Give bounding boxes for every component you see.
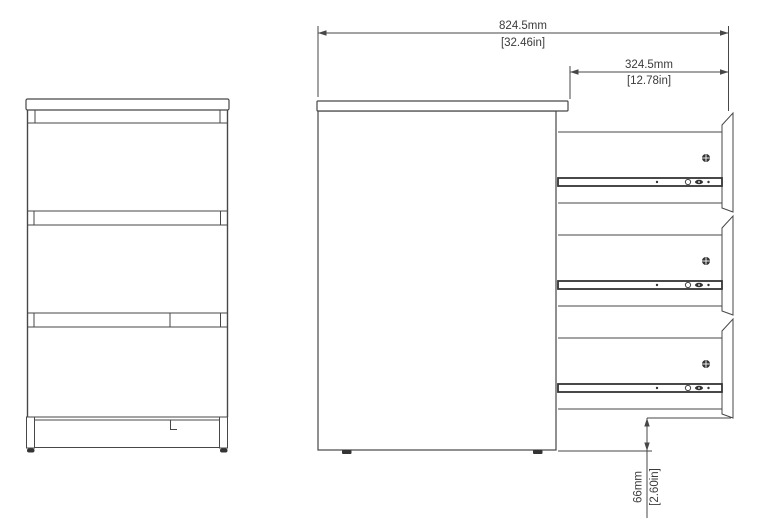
slide-rivet-icon <box>656 284 658 286</box>
slide-rivet-icon <box>707 181 709 183</box>
side-panel <box>318 111 556 450</box>
slide-roller-icon <box>685 282 690 287</box>
drawer1-front-panel <box>722 113 733 212</box>
overall-width-metric-label: 824.5mm <box>499 20 547 32</box>
arrowhead-up-icon <box>644 418 649 427</box>
overall-width-imperial-label: [32.46in] <box>501 37 545 49</box>
side-top-panel <box>317 101 568 111</box>
slide-roller-icon <box>685 385 690 390</box>
drawer3-front-panel <box>722 319 733 418</box>
front-top-panel <box>26 99 229 110</box>
arrowhead-right-icon <box>720 69 729 74</box>
cam-screw-icon <box>702 360 710 368</box>
drawer-3-assembly <box>558 319 733 418</box>
technical-drawing-page: 824.5mm [32.46in] 324.5mm [12.78in] 66mm… <box>0 0 768 524</box>
slide-latch-hole-icon <box>698 387 700 389</box>
plinth-notch-mark <box>171 420 178 430</box>
drawer-extension-metric-label: 324.5mm <box>625 59 673 71</box>
slide-roller-icon <box>685 179 690 184</box>
drawer-extension-imperial-label: [12.78in] <box>627 75 671 87</box>
slide-rivet-icon <box>656 387 658 389</box>
front-left-foot <box>27 449 35 453</box>
drawer-1-assembly <box>558 113 733 212</box>
slide-latch-hole-icon <box>698 284 700 286</box>
front-view <box>26 99 229 453</box>
arrowhead-right-icon <box>720 30 729 35</box>
slide-rivet-icon <box>707 387 709 389</box>
arrowhead-down-icon <box>644 443 649 452</box>
front-right-leg <box>220 417 228 448</box>
slide-rivet-icon <box>707 284 709 286</box>
cam-screw-icon <box>702 154 710 162</box>
dimension-floor-clearance: 66mm [2.60in] <box>558 418 731 518</box>
slide-latch-hole-icon <box>698 181 700 183</box>
arrowhead-left-icon <box>318 30 327 35</box>
front-left-leg <box>27 417 35 448</box>
floor-clearance-imperial-label: [2.60in] <box>649 468 661 506</box>
cam-screw-icon <box>702 257 710 265</box>
drawer2-front-panel <box>722 216 733 315</box>
side-rear-foot <box>533 450 543 454</box>
drawer-2-assembly <box>558 216 733 315</box>
arrowhead-left-icon <box>570 69 579 74</box>
side-view <box>317 101 733 454</box>
dimension-drawer-extension: 324.5mm [12.78in] <box>570 59 729 99</box>
front-right-foot <box>220 449 228 453</box>
side-front-foot <box>342 450 352 454</box>
slide-rivet-icon <box>656 181 658 183</box>
furniture-dimension-drawing: 824.5mm [32.46in] 324.5mm [12.78in] 66mm… <box>0 0 768 524</box>
floor-clearance-metric-label: 66mm <box>633 471 645 503</box>
